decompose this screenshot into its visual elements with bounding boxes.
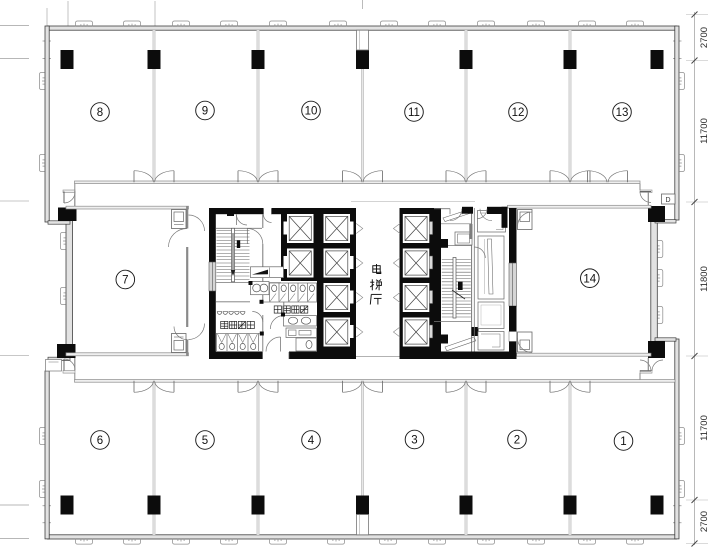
- svg-text:4: 4: [308, 435, 315, 447]
- svg-text:8: 8: [97, 107, 103, 119]
- svg-text:2: 2: [514, 435, 520, 447]
- svg-text:10: 10: [305, 106, 318, 118]
- svg-text:13: 13: [616, 107, 629, 119]
- svg-text:14: 14: [583, 273, 596, 285]
- svg-text:1: 1: [620, 436, 626, 448]
- svg-text:11: 11: [408, 107, 420, 119]
- svg-text:11700: 11700: [699, 118, 710, 144]
- svg-text:11700: 11700: [699, 415, 710, 441]
- svg-text:5: 5: [202, 435, 208, 447]
- svg-text:2700: 2700: [699, 511, 710, 532]
- svg-text:9: 9: [202, 106, 208, 118]
- svg-text:7: 7: [122, 275, 128, 287]
- svg-text:3: 3: [411, 435, 417, 447]
- svg-text:D: D: [665, 197, 670, 204]
- svg-text:6: 6: [97, 435, 103, 447]
- svg-text:11800: 11800: [699, 266, 710, 292]
- svg-text:12: 12: [512, 107, 525, 119]
- svg-text:2700: 2700: [699, 27, 710, 48]
